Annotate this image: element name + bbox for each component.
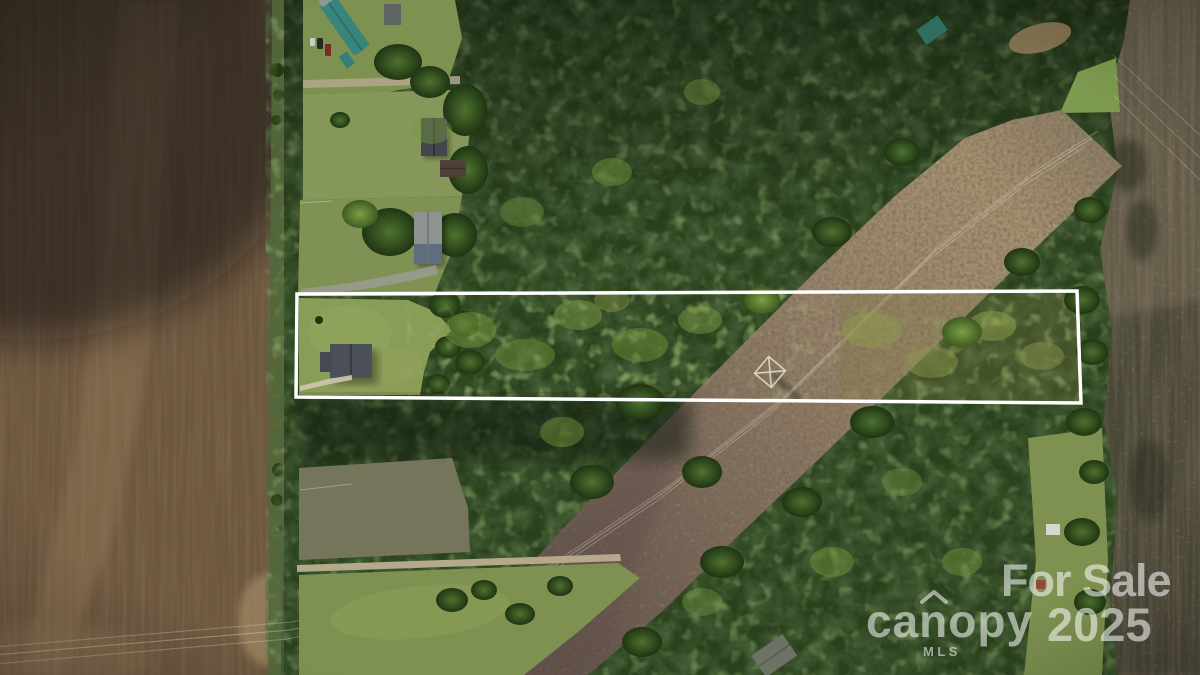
vignette bbox=[0, 0, 1200, 675]
stage: For Sale canopy MLS 2025 bbox=[0, 0, 1200, 675]
aerial-photo bbox=[0, 0, 1200, 675]
